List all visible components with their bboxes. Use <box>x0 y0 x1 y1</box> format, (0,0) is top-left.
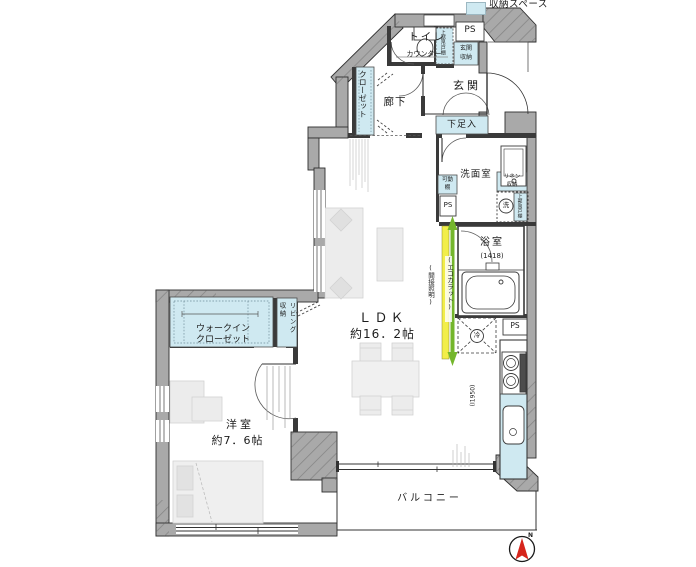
bed-pillow <box>177 466 193 490</box>
ldk-label: ＬＤＫ <box>340 312 425 327</box>
dining-chair <box>360 396 381 415</box>
wic-label-2: クローゼット <box>171 335 275 345</box>
floorplan: 収納スペース トイレ カウンター 上部吊戸棚 PS 玄関収納 玄関 下足入 廊下… <box>0 0 696 567</box>
dining-chair <box>360 343 381 362</box>
dining-chair <box>392 343 413 362</box>
living-storage-label: リビング収納 <box>277 302 297 336</box>
bathtub-drain <box>499 280 503 284</box>
front-door-arc <box>487 73 528 114</box>
upper-cabinet-washroom-label: 上部吊戸棚 <box>516 194 522 222</box>
hallway-label: 廊下 <box>372 96 418 108</box>
shoe-cabinet-door <box>443 93 466 115</box>
western-room-size-label: 約7．6帖 <box>190 435 285 448</box>
dining-table <box>352 361 419 397</box>
bathtub-inner <box>466 276 515 309</box>
kitchen-sink <box>503 406 524 444</box>
ps-washroom-label: PS <box>440 201 456 209</box>
entrance-hall-door <box>399 72 423 96</box>
legend-label: 収納スペース <box>489 0 548 11</box>
upper-cabinet-entrance-label: 上部吊戸棚 <box>439 30 445 64</box>
bathroom-size-label: (1418) <box>462 252 522 260</box>
toilet-window-niche <box>424 15 454 26</box>
shoe-cabinet-label: 下足入 <box>436 120 488 130</box>
desk-side <box>192 397 222 421</box>
wall-left-step <box>308 127 348 138</box>
bed-pillow <box>177 495 193 517</box>
washroom-door <box>442 138 466 162</box>
washer-symbol: 洗 <box>500 202 512 209</box>
compass-north-label: N <box>528 533 533 540</box>
coffee-table <box>377 228 403 281</box>
kitchen-size-label: (I1950) <box>471 371 478 419</box>
linen-storage-label: リネン収納 <box>497 173 527 189</box>
entrance-storage-label: 玄関収納 <box>454 45 478 62</box>
wall-right-entrance <box>479 42 487 73</box>
wall-balcony-step <box>322 478 337 492</box>
compass <box>510 537 535 562</box>
western-room-label: 洋室 <box>195 419 285 432</box>
movable-shelf-label: 可動棚 <box>438 176 457 192</box>
dining-chair <box>392 396 413 415</box>
washbasin-bowl <box>504 149 523 176</box>
ecocarat-label: (エコカラット) <box>445 256 452 322</box>
indirect-light-label: (間接照明) <box>426 264 433 316</box>
ps-top-label: PS <box>456 25 484 35</box>
ldk-size-label: 約16．2帖 <box>330 328 435 342</box>
wall-left-step2 <box>308 138 319 170</box>
closet-label: クローゼット <box>358 70 367 132</box>
fridge-symbol: 冷 <box>471 332 483 339</box>
bathroom-label: 浴室 <box>462 237 522 249</box>
bathroom-door-handle <box>486 263 499 270</box>
floorplan-drawing <box>0 0 696 567</box>
balcony-label: バルコニー <box>382 493 477 505</box>
wall-west-left <box>156 290 169 536</box>
legend-swatch <box>466 2 486 15</box>
kitchen-stove-panel <box>520 354 526 392</box>
wall-entrance-step <box>505 112 536 136</box>
entrance-label: 玄関 <box>442 80 492 93</box>
ps-kitchen-label: PS <box>503 322 527 331</box>
wic-label-1: ウォークイン <box>171 324 275 334</box>
